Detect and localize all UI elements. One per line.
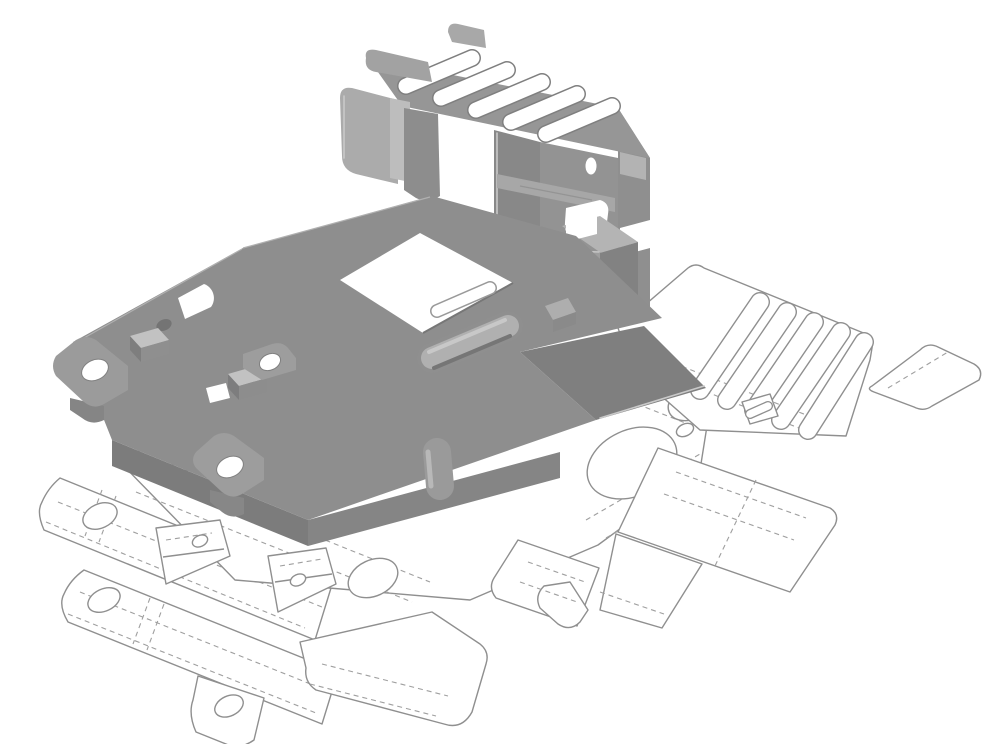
cage-hanging-flap-1 — [404, 108, 440, 201]
cad-canvas — [0, 0, 1005, 744]
cage-top-tab — [448, 24, 486, 48]
cage-left-wall — [340, 88, 398, 184]
flat-right-wing — [869, 345, 980, 409]
bottom-flange-tab — [428, 452, 440, 486]
cad-viewport — [0, 0, 1005, 744]
wall-hole — [586, 158, 597, 175]
flat-bottom-centre-tab — [300, 612, 487, 726]
